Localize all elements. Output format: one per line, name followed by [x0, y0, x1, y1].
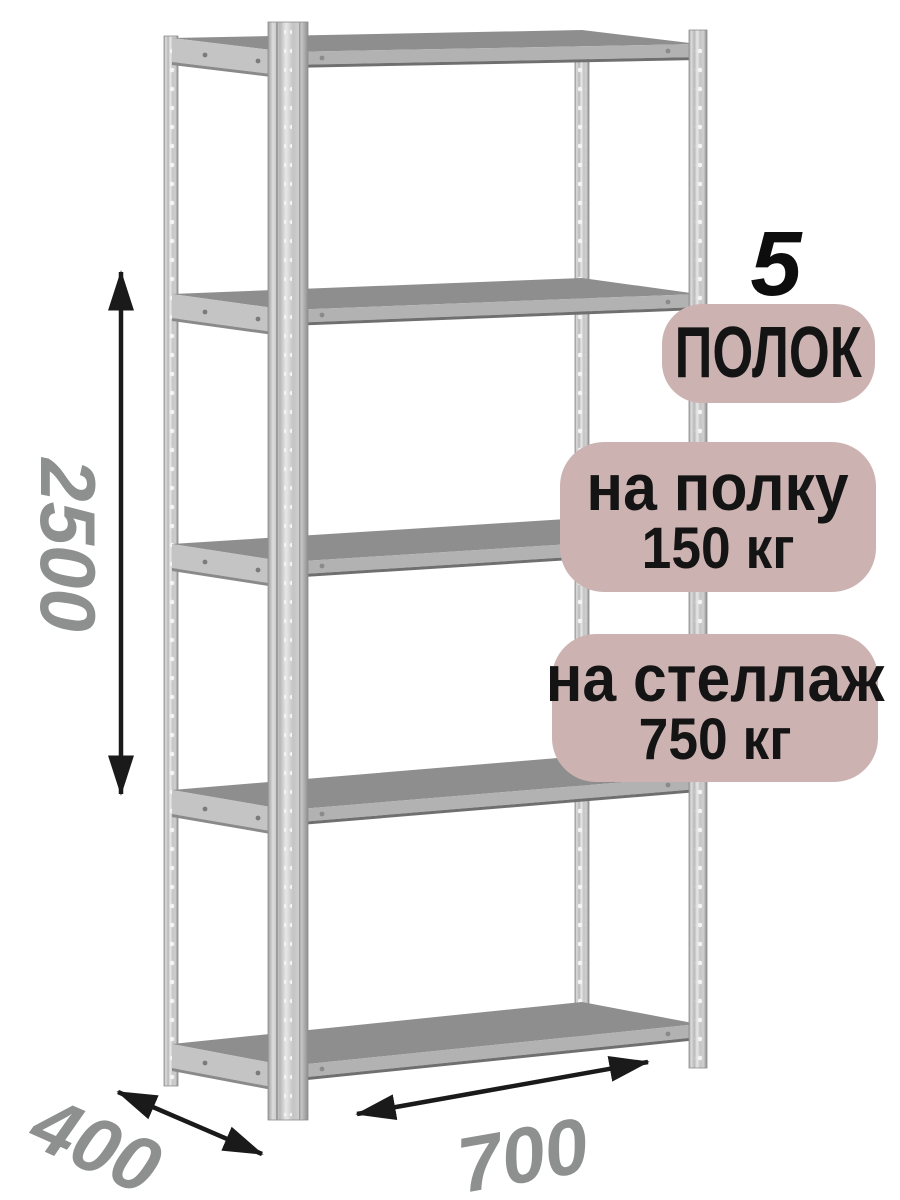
rack-load-line1: на стеллаж	[546, 646, 885, 710]
rack-shelf	[172, 30, 698, 79]
front-left-post	[268, 22, 308, 1120]
shelf-load-line1: на полку	[587, 455, 849, 519]
shelf-load-line2: 150 кг	[642, 519, 795, 579]
rack-load-badge: на стеллаж 750 кг	[552, 634, 878, 782]
product-image: 2500 400 700 5 ПОЛОК на полку 150 кг на …	[0, 0, 900, 1200]
height-dimension-label: 2500	[28, 395, 108, 695]
shelves-count-label: ПОЛОК	[675, 304, 862, 403]
shelving-rack-illustration	[0, 0, 900, 1200]
rack-shelf	[172, 1002, 698, 1093]
rack-shelf	[172, 278, 698, 337]
rack-load-line2: 750 кг	[639, 710, 792, 770]
shelves-count-badge: ПОЛОК	[662, 304, 875, 403]
shelf-load-badge: на полку 150 кг	[560, 442, 876, 592]
shelves-count-number: 5	[716, 214, 836, 314]
